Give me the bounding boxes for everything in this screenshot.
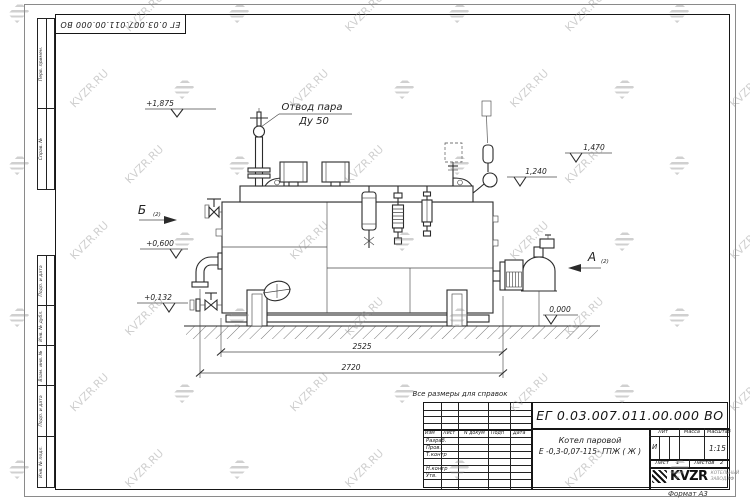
tb-row-utv: Утв. [426, 473, 437, 479]
frame-strip-bottom: Подп. и дата Инв. № дубл. Взам. инв. № П… [37, 255, 55, 488]
tb-sheets-label: Листов [694, 460, 715, 466]
tb-row-nkontr: Н.контр [426, 466, 448, 472]
title-block: Изм Лист N докум Подп Дата Разраб. Пров.… [423, 402, 728, 488]
frame-cell-label: Инв. № дубл. [39, 310, 44, 341]
frame-cell-label: Подп. и дата [39, 265, 44, 296]
kvzr-logo-subtext: КОТЕЛЬНЫЙ ЗАВОД.РФ [711, 471, 740, 481]
frame-strip-top: Перв. примен. Справ. № [37, 18, 55, 190]
tb-row-razrab: Разраб. [426, 438, 446, 444]
tb-col-list: Лист [443, 431, 455, 436]
blueprint-page: ЕГ 0.03.007.011.00.000 ВО Перв. примен. … [0, 0, 750, 500]
tb-col-data: Дата [513, 431, 525, 436]
tb-row-tkontr: Т.контр [426, 452, 447, 458]
frame-cell-label: Подп. и дата [39, 395, 44, 426]
tb-sheet-value: 1 [676, 460, 680, 466]
corner-stamp: ЕГ 0.03.007.011.00.000 ВО [55, 14, 186, 34]
kvzr-logo-icon [652, 470, 667, 483]
tb-product-name-2: Е -0,3-0,07-115- ГПЖ ( Ж ) [532, 447, 648, 456]
tb-col-podp: Подп [491, 431, 504, 436]
corner-stamp-number: ЕГ 0.03.007.011.00.000 ВО [60, 20, 180, 29]
tb-scale-value: 1:15 [709, 444, 726, 453]
strip-divider [46, 19, 47, 189]
format-label: Формат А3 [668, 490, 708, 498]
tb-sheets-value: 2 [720, 460, 724, 466]
strip-divider [46, 256, 47, 487]
tb-col-ndokum: N докум [464, 431, 485, 436]
frame-cell-label: Инв. № подл. [39, 446, 44, 478]
tb-lit-label: Лит [658, 429, 668, 435]
frame-cell-label: Взам. инв. № [39, 350, 44, 381]
kvzr-logo-text: KVZR [670, 469, 708, 484]
tb-product-name-1: Котел паровой [532, 436, 648, 445]
frame-cell-label: Справ. № [39, 138, 44, 160]
tb-col-izm: Изм [425, 431, 435, 436]
tb-mass-label: Масса [684, 429, 700, 435]
tb-doc-number: ЕГ 0.03.007.011.00.000 ВО [532, 403, 728, 428]
tb-sheet-label: Лист [655, 460, 669, 466]
tb-lit-value: И [652, 443, 657, 451]
tb-scale-label: Масштаб [707, 429, 731, 435]
tb-row-prov: Пров. [426, 445, 441, 451]
company-logo: KVZR КОТЕЛЬНЫЙ ЗАВОД.РФ [652, 469, 739, 484]
frame-cell-label: Перв. примен. [39, 46, 44, 81]
